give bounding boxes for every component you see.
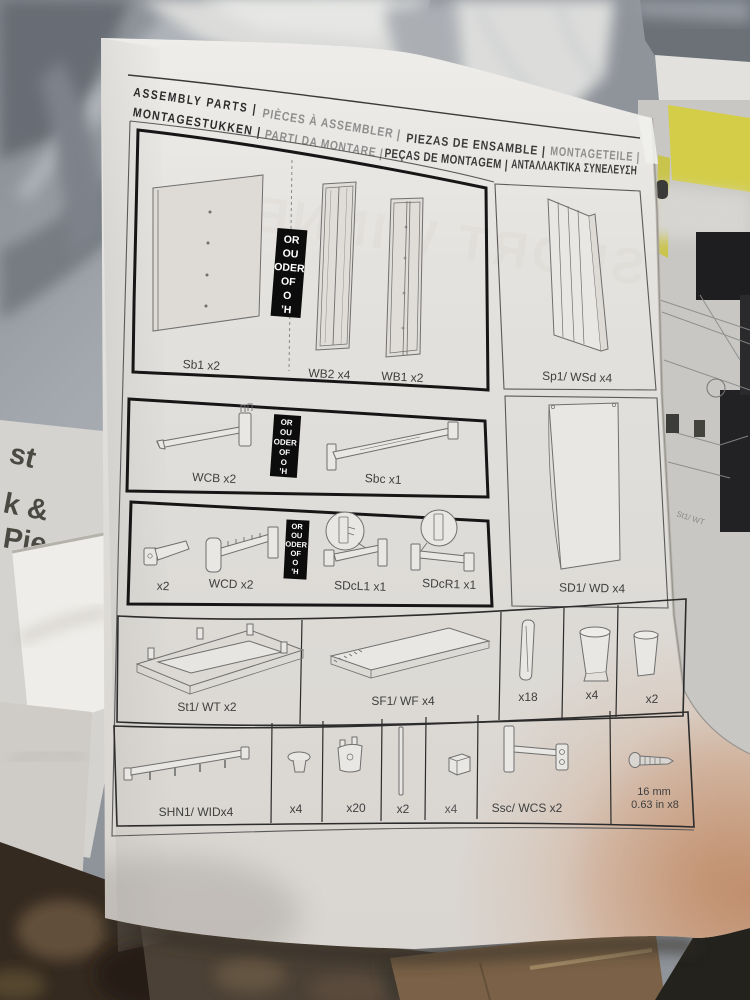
svg-text:O: O (283, 290, 292, 303)
svg-text:OF: OF (281, 275, 297, 288)
svg-text:OR: OR (280, 418, 293, 428)
svg-text:x4: x4 (445, 802, 458, 816)
svg-text:Sbc x1: Sbc x1 (365, 471, 403, 487)
svg-text:WB1 x2: WB1 x2 (381, 369, 424, 385)
svg-text:SHN1/ WIDx4: SHN1/ WIDx4 (159, 805, 234, 819)
svg-text:16 mm: 16 mm (637, 786, 671, 798)
svg-text:O: O (280, 458, 287, 467)
svg-text:OU: OU (282, 247, 299, 260)
svg-text:ODER: ODER (274, 261, 306, 275)
svg-text:Sp1/ WSd x4: Sp1/ WSd x4 (542, 369, 613, 385)
svg-text:O: O (292, 558, 298, 567)
svg-text:x4: x4 (290, 802, 303, 816)
svg-text:SF1/ WF x4: SF1/ WF x4 (371, 694, 435, 708)
svg-text:Ssc/ WCS x2: Ssc/ WCS x2 (492, 801, 563, 815)
svg-text:x2: x2 (397, 802, 410, 816)
svg-text:OF: OF (279, 448, 291, 458)
svg-text:WCB x2: WCB x2 (192, 470, 237, 486)
svg-text:OU: OU (280, 428, 293, 438)
svg-text:ʼH: ʼH (279, 467, 288, 477)
svg-text:ʼH: ʼH (280, 303, 291, 316)
svg-text:x4: x4 (586, 688, 599, 702)
svg-text:WCD x2: WCD x2 (209, 576, 254, 592)
svg-text:WB2 x4: WB2 x4 (308, 366, 351, 382)
svg-text:x20: x20 (346, 801, 366, 815)
svg-text:ʼH: ʼH (291, 567, 299, 576)
svg-text:SDcR1 x1: SDcR1 x1 (422, 576, 477, 592)
svg-text:x2: x2 (157, 579, 170, 593)
svg-text:ODER: ODER (273, 437, 297, 448)
svg-text:OR: OR (283, 234, 300, 247)
svg-text:Sb1 x2: Sb1 x2 (182, 357, 220, 373)
svg-text:St1/ WT x2: St1/ WT x2 (177, 700, 236, 714)
svg-text:x2: x2 (646, 692, 659, 706)
svg-text:0.63 in x8: 0.63 in x8 (631, 799, 679, 811)
svg-text:x18: x18 (518, 690, 538, 704)
svg-text:SDcL1 x1: SDcL1 x1 (334, 578, 387, 594)
svg-text:SD1/ WD x4: SD1/ WD x4 (559, 580, 626, 595)
